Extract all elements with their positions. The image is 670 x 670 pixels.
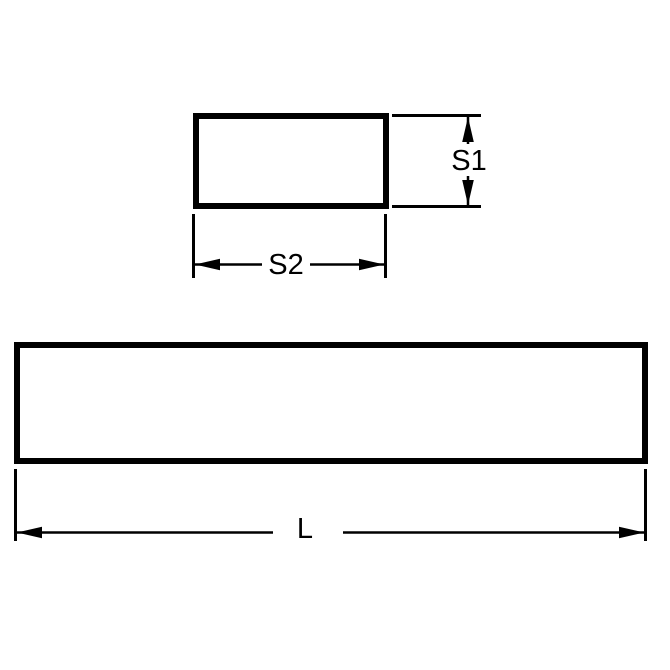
s2-dimension-label: S2 [268,249,303,281]
s2-arrowhead-right-icon [359,259,384,271]
s1-arrowhead-up-icon [462,117,474,142]
l-dimension-label: L [297,513,313,545]
l-arrowhead-left-icon [17,527,42,539]
s1-arrowhead-down-icon [462,180,474,205]
keystock-dimension-drawing: S1 S2 L [0,0,670,670]
l-arrowhead-right-icon [619,527,644,539]
bar-length-rectangle [17,345,645,461]
technical-drawing: S1 S2 L [0,0,670,670]
s1-dimension-label: S1 [451,145,486,177]
cross-section-rectangle [196,116,386,206]
s2-arrowhead-left-icon [195,259,220,271]
